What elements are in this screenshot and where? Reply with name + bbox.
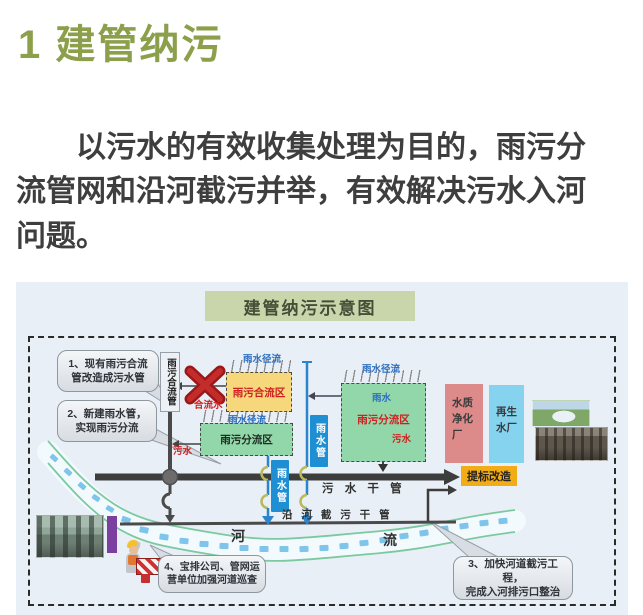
callout-3: 3、加快河道截污工程， 完成入河排污口整治 (453, 556, 573, 600)
article-page: 1 建管纳污 以污水的有效收集处理为目的，雨污分 流管网和沿河截污并举，有效解决… (0, 0, 643, 615)
storm-pipe-b-text: 雨水管 (312, 423, 327, 459)
river-bridge-photo (36, 515, 104, 558)
pipe-junction-node (163, 470, 178, 485)
callout-1: 1、现有雨污合流 管改造成污水管 (57, 350, 159, 392)
water-purification-plant: 水质 净化 厂 (445, 384, 483, 463)
outfall-bar (107, 516, 117, 553)
zone-b-sewage-label: 污水 (392, 431, 411, 445)
x-mark-icon (190, 371, 220, 399)
plant-aerial-photo (532, 400, 590, 427)
reclaimed-water-plant: 再生 水厂 (489, 385, 524, 463)
callout-2: 2、新建雨水管， 实现雨污分流 (57, 400, 157, 442)
callout-4: 4、宝排公司、管网运 营单位加强河道巡查 (158, 555, 266, 593)
river-label-1: 河 (231, 526, 245, 546)
intro-paragraph: 以污水的有效收集处理为目的，雨污分 流管网和沿河截污并举，有效解决污水入河 问题… (16, 126, 628, 259)
combined-pipe-label: 雨污合流管 (160, 352, 180, 412)
sewage-left-label: 污水 (173, 443, 192, 457)
river-label-2: 流 (383, 530, 397, 550)
combined-pipe-text: 雨污合流管 (163, 358, 177, 406)
separated-zone-b-label: 雨污分流区 (342, 412, 425, 427)
storm-pipe-a-label: 雨水管 (271, 460, 289, 512)
separated-zone-b: 雨水 雨污分流区 污水 (341, 383, 426, 462)
combined-zone-label: 雨污合流区 (233, 385, 286, 400)
page-title: 1 建管纳污 (18, 12, 223, 70)
combined-sewer-zone: 雨污合流区 (226, 372, 292, 412)
sewage-main-label: 污 水 干 管 (322, 480, 406, 496)
runoff-label-b: 雨水径流 (362, 361, 400, 375)
interceptor-label: 沿 河 截 污 干 管 (282, 507, 393, 522)
safety-cone-icon (141, 574, 150, 583)
runoff-label-combined: 雨水径流 (243, 351, 281, 365)
runoff-label-a: 雨水径流 (228, 412, 266, 426)
upgrade-box: 提标改造 (461, 466, 517, 486)
separated-zone-a: 雨污分流区 (200, 423, 293, 456)
plant-interior-photo (535, 427, 608, 461)
zone-b-rain-label: 雨水 (372, 390, 391, 404)
separated-zone-a-label: 雨污分流区 (220, 432, 273, 447)
combined-water-label: 合流水 (194, 397, 223, 411)
storm-pipe-b-label: 雨水管 (310, 415, 328, 467)
storm-pipe-a-text: 雨水管 (273, 468, 288, 504)
